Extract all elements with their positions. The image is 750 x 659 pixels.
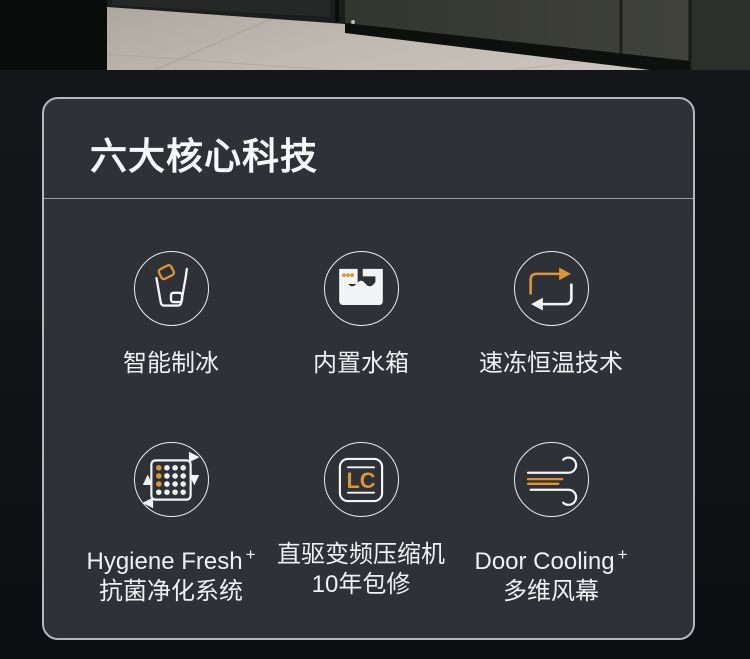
feature-label: Hygiene Fresh+ [86, 540, 255, 577]
feature-icon-circle [134, 442, 209, 517]
air-filter-icon [139, 448, 203, 512]
wind-icon [519, 448, 583, 512]
feature-label: Door Cooling+ [474, 540, 627, 577]
feature-icon-circle [134, 251, 209, 326]
feature-cell-water-tank: 内置水箱 [266, 251, 456, 379]
feature-label-text: 内置水箱 [313, 350, 409, 377]
product-detail-page: 六大核心科技 智能制冰 [0, 0, 750, 659]
feature-label: 智能制冰 [123, 349, 219, 379]
feature-label-text: Hygiene Fresh [86, 548, 242, 575]
fridge-right-door [690, 0, 750, 70]
section-title: 六大核心科技 [90, 126, 318, 180]
kitchen-refrigerator-photo [0, 0, 750, 70]
feature-label-sup: + [246, 545, 256, 564]
feature-sublabel: 10年包修 [312, 570, 411, 600]
feature-label: 速冻恒温技术 [479, 349, 623, 379]
water-tank-icon [329, 257, 393, 321]
feature-icon-circle [324, 251, 399, 326]
floor-glint [351, 20, 355, 24]
feature-label: 直驱变频压缩机 [277, 540, 445, 570]
feature-icon-circle [514, 251, 589, 326]
lc-letters: LC [346, 468, 375, 493]
card-header: 六大核心科技 [44, 99, 693, 199]
feature-cell-quick-freeze: 速冻恒温技术 [456, 251, 646, 379]
feature-label-text: 直驱变频压缩机 [277, 541, 445, 568]
feature-cell-hygiene-fresh: Hygiene Fresh+ 抗菌净化系统 [76, 442, 266, 607]
feature-label-text: Door Cooling [474, 548, 614, 575]
feature-sublabel: 抗菌净化系统 [99, 577, 243, 607]
kitchen-photo-graphic [0, 0, 750, 70]
feature-label: 内置水箱 [313, 349, 409, 379]
feature-cell-door-cooling: Door Cooling+ 多维风幕 [456, 442, 646, 607]
feature-icon-circle: LC [324, 442, 399, 517]
ice-bucket-icon [139, 257, 203, 321]
feature-icon-circle [514, 442, 589, 517]
feature-label-sup: + [618, 545, 628, 564]
feature-grid: 智能制冰 内置水箱 [76, 251, 646, 607]
feature-label-text: 智能制冰 [123, 350, 219, 377]
core-tech-card: 六大核心科技 智能制冰 [42, 97, 695, 640]
feature-cell-compressor: LC 直驱变频压缩机 10年包修 [266, 442, 456, 607]
lc-compressor-icon: LC [329, 448, 393, 512]
feature-label-text: 速冻恒温技术 [479, 350, 623, 377]
cycle-arrows-icon [519, 257, 583, 321]
feature-cell-smart-ice: 智能制冰 [76, 251, 266, 379]
feature-sublabel: 多维风幕 [503, 577, 599, 607]
